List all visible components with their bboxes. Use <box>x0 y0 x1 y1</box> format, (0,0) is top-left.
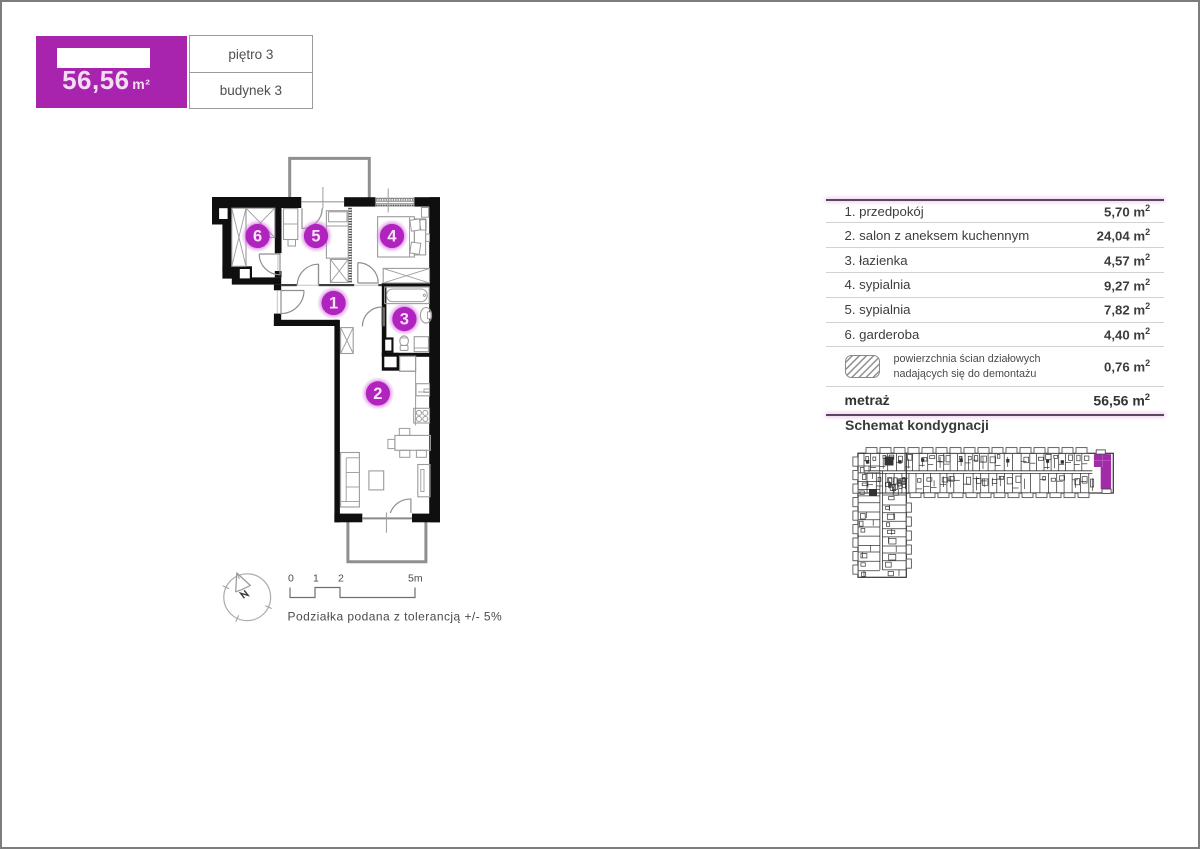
svg-text:2: 2 <box>373 385 382 403</box>
svg-text:4: 4 <box>387 228 397 246</box>
svg-text:6: 6 <box>253 228 262 246</box>
svg-text:1: 1 <box>313 573 319 585</box>
svg-text:2: 2 <box>338 573 344 585</box>
svg-text:1: 1 <box>329 295 338 313</box>
svg-text:Podziałka podana z tolerancją: Podziałka podana z tolerancją +/- 5% <box>288 610 503 624</box>
svg-text:5m: 5m <box>408 573 423 585</box>
svg-text:0: 0 <box>288 573 294 585</box>
svg-text:3: 3 <box>400 311 409 329</box>
svg-text:5: 5 <box>311 228 320 246</box>
